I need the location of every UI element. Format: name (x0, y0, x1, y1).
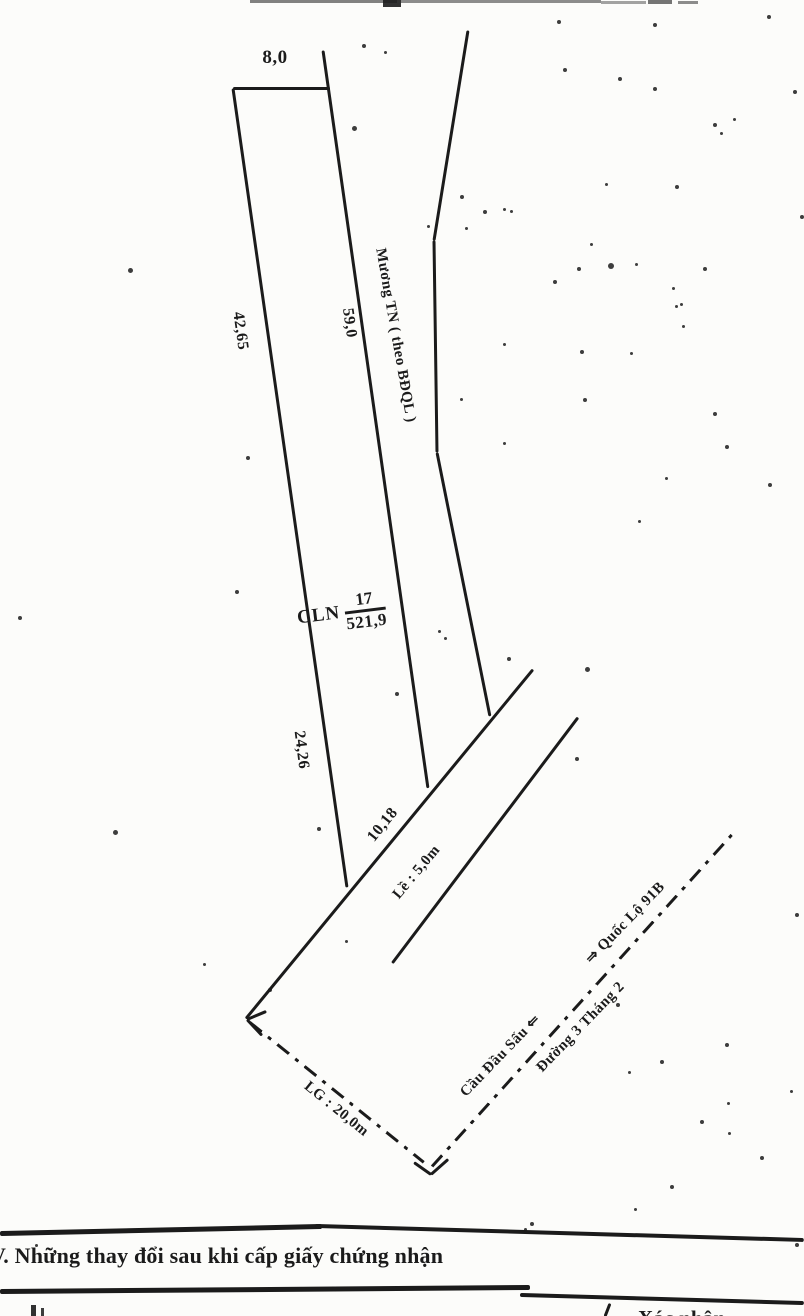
scan-noise-dot (580, 350, 584, 354)
scan-noise-dot (800, 215, 804, 219)
scan-noise-dot (725, 1043, 729, 1047)
dim-top-width: 8,0 (245, 47, 305, 69)
scan-noise-dot (703, 267, 707, 271)
scan-smudge-mark (401, 0, 601, 3)
road-width-label: LG : 20,0m (288, 1068, 384, 1150)
scan-noise-dot (317, 827, 321, 831)
scan-noise-dot (767, 15, 771, 19)
scan-noise-dot (503, 442, 506, 445)
scan-noise-dot (713, 123, 717, 127)
scan-noise-dot (395, 692, 399, 696)
scan-noise-dot (577, 267, 581, 271)
scan-smudge-mark (250, 0, 397, 3)
scan-noise-dot (638, 520, 641, 523)
scan-noise-dot (634, 1208, 637, 1211)
scan-noise-dot (700, 1120, 704, 1124)
scan-noise-dot (507, 657, 511, 661)
scan-smudge-mark (41, 1308, 44, 1316)
scan-noise-dot (503, 208, 506, 211)
canal-segment-3 (436, 452, 492, 717)
scan-noise-dot (672, 287, 675, 290)
scan-noise-dot (557, 20, 561, 24)
scan-noise-dot (605, 183, 608, 186)
scan-noise-dot (465, 227, 468, 230)
scan-noise-dot (660, 1060, 664, 1064)
scan-noise-dot (362, 44, 366, 48)
scan-noise-dot (438, 630, 441, 633)
scan-noise-dot (384, 51, 387, 54)
scan-noise-dot (235, 590, 239, 594)
dim-left-lower: 24,26 (288, 714, 314, 786)
lg-dashdot-line (249, 1021, 425, 1163)
scan-noise-dot (790, 1090, 793, 1093)
scan-noise-dot (675, 185, 679, 189)
scan-noise-dot (675, 305, 678, 308)
scan-noise-dot (725, 445, 729, 449)
parcel-label: CLN 17 521,9 (295, 588, 388, 639)
scan-noise-dot (653, 23, 657, 27)
scan-noise-dot (203, 963, 206, 966)
scan-smudge-mark (601, 1, 646, 4)
scan-noise-dot (768, 483, 772, 487)
scan-noise-dot (760, 1156, 764, 1160)
parcel-land-use-code: CLN (296, 603, 341, 630)
scan-noise-dot (727, 1102, 730, 1105)
parcel-number-area-fraction: 17 521,9 (343, 588, 388, 633)
scan-noise-dot (575, 757, 579, 761)
scan-noise-dot (682, 325, 685, 328)
scan-noise-dot (665, 477, 668, 480)
arrowhead-stroke-2 (246, 1018, 263, 1036)
scan-noise-dot (510, 210, 513, 213)
table-rule-mid-right (520, 1293, 804, 1305)
scan-smudge-mark (31, 1305, 36, 1316)
scan-noise-dot (345, 940, 348, 943)
scan-noise-dot (246, 456, 250, 460)
scan-noise-dot (733, 118, 736, 121)
scan-noise-dot (618, 77, 622, 81)
column-divider (604, 1302, 612, 1316)
parcel-area: 521,9 (345, 609, 388, 633)
scan-noise-dot (713, 412, 717, 416)
table-rule-top-left (0, 1224, 322, 1236)
scan-noise-dot (553, 280, 557, 284)
scan-noise-dot (795, 913, 799, 917)
scan-noise-dot (268, 988, 272, 992)
canal-segment-1 (433, 30, 470, 240)
table-rule-mid-left (0, 1285, 530, 1294)
road-edge-lower (391, 716, 579, 964)
direction-label-highway: ⇒ Quốc Lộ 91B (563, 858, 688, 986)
scan-noise-dot (530, 1222, 534, 1226)
scan-noise-dot (628, 1071, 631, 1074)
scan-noise-dot (503, 343, 506, 346)
scan-noise-dot (616, 1003, 620, 1007)
scan-noise-dot (585, 667, 590, 672)
scan-noise-dot (352, 126, 357, 131)
scan-noise-dot (444, 637, 447, 640)
scan-noise-dot (563, 68, 567, 72)
next-row-right-column-header-partial: Xác nhận (638, 1306, 725, 1316)
scan-smudge-mark (678, 1, 698, 4)
scan-noise-dot (583, 398, 587, 402)
scan-smudge-mark (383, 0, 401, 7)
scan-noise-dot (630, 352, 633, 355)
scan-noise-dot (113, 830, 118, 835)
table-rule-top-right (315, 1224, 804, 1242)
scanned-certificate-page: 8,0 42,65 24,26 59,0 Mương TN ( theo BĐQ… (0, 0, 804, 1316)
scan-noise-dot (795, 1243, 799, 1247)
parcel-top-edge (233, 87, 330, 90)
scan-noise-dot (728, 1132, 731, 1135)
scan-noise-dot (653, 87, 657, 91)
scan-noise-dot (793, 90, 797, 94)
canal-segment-2 (433, 240, 439, 452)
scan-noise-dot (680, 303, 683, 306)
scan-noise-dot (460, 398, 463, 401)
scan-noise-dot (720, 132, 723, 135)
parcel-left-edge (232, 88, 349, 887)
section-v-heading: V. Những thay đổi sau khi cấp giấy chứng… (0, 1243, 443, 1269)
scan-noise-dot (608, 263, 614, 269)
scan-noise-dot (128, 268, 133, 273)
scan-noise-dot (483, 210, 487, 214)
dim-left-upper: 42,65 (226, 295, 254, 367)
scan-noise-dot (460, 195, 464, 199)
scan-noise-dot (635, 263, 638, 266)
scan-smudge-mark (648, 0, 672, 4)
road-centerline (431, 832, 734, 1167)
scan-noise-dot (590, 243, 593, 246)
scan-noise-dot (670, 1185, 674, 1189)
scan-noise-dot (524, 1228, 527, 1231)
scan-noise-dot (427, 225, 430, 228)
scan-noise-dot (18, 616, 22, 620)
